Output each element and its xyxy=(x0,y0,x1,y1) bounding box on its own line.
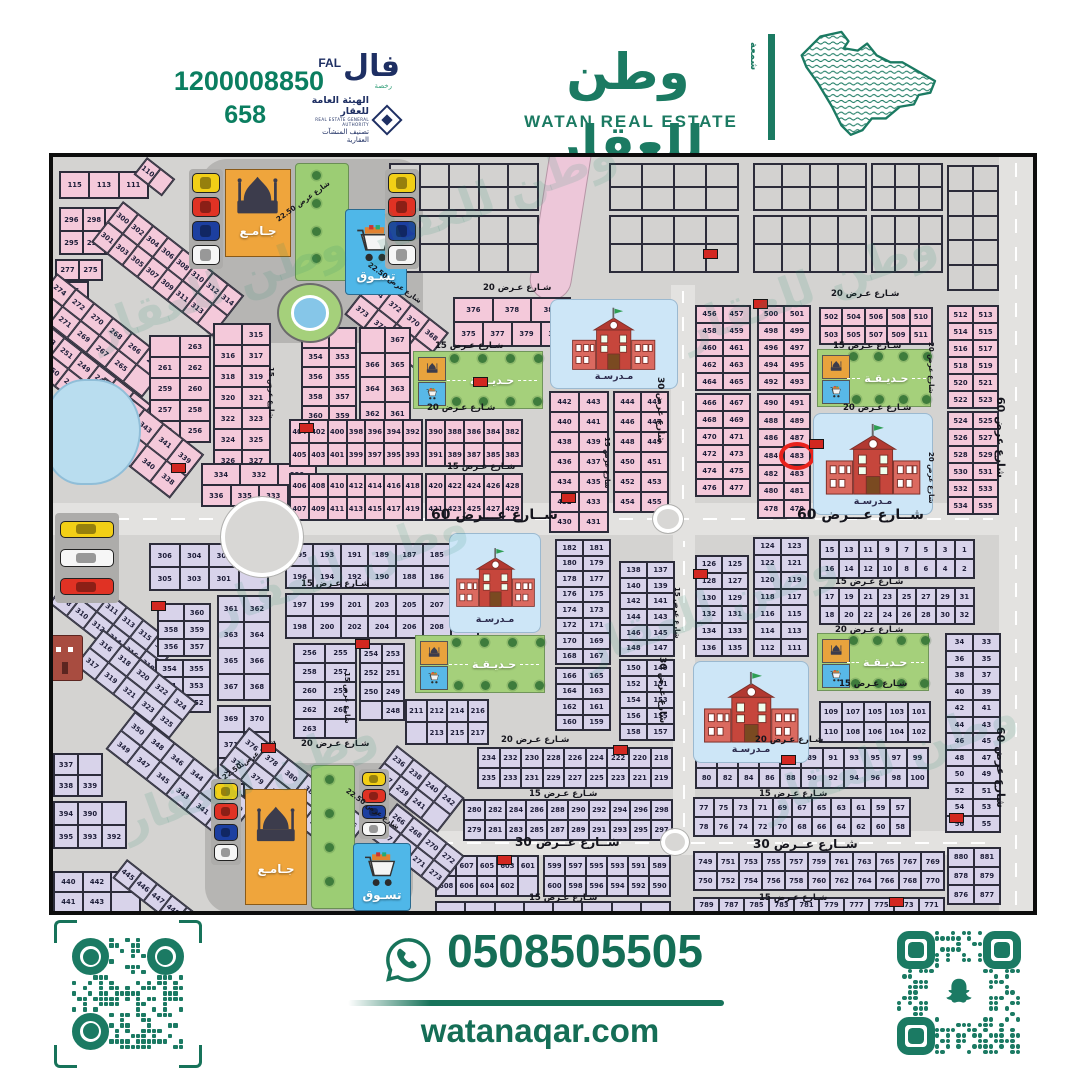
plot-row: 80828486889092949698100 xyxy=(696,768,928,788)
plot-unnumbered xyxy=(754,164,782,187)
tree-icon xyxy=(920,679,929,688)
plot-unnumbered xyxy=(973,191,998,216)
plot-122: 122 xyxy=(754,555,781,572)
plot-462: 462 xyxy=(696,356,723,373)
plot-row: 4847 xyxy=(946,750,1000,767)
plot-6: 6 xyxy=(916,559,935,578)
plot-unnumbered xyxy=(479,187,509,210)
qr-module xyxy=(924,969,928,973)
plot-486: 486 xyxy=(758,429,784,447)
plot-599: 599 xyxy=(544,856,565,876)
qr-module xyxy=(147,981,151,985)
plot-unnumbered xyxy=(948,265,973,290)
plot-499: 499 xyxy=(784,323,810,340)
qr-module xyxy=(163,981,167,985)
plot-395: 395 xyxy=(54,825,78,848)
street-label: شارع عرض 30 xyxy=(655,377,665,443)
plot-unnumbered xyxy=(420,216,450,244)
plot-355: 355 xyxy=(183,660,210,677)
qr-module xyxy=(924,1001,928,1005)
qr-module xyxy=(109,981,113,985)
qr-module xyxy=(972,1028,976,1032)
plot-193: 193 xyxy=(313,544,340,566)
plot-block-a24: 466467468469470471472473474475476477 xyxy=(695,393,751,497)
plot-row: 15131197531 xyxy=(820,540,974,559)
plot-789: 789 xyxy=(694,898,719,912)
plot-row: 534535 xyxy=(948,497,998,514)
plot-467: 467 xyxy=(723,394,750,411)
plot-876: 876 xyxy=(948,885,974,904)
plot-row: 142141 xyxy=(620,593,674,609)
plot-191: 191 xyxy=(341,544,368,566)
plot-2: 2 xyxy=(955,559,974,578)
qr-module xyxy=(1010,1050,1014,1054)
plot-771: 771 xyxy=(919,898,944,912)
plot-398: 398 xyxy=(347,420,366,443)
qr-module xyxy=(999,980,1003,984)
plot-483-highlighted: 483 xyxy=(784,447,810,465)
plot-37: 37 xyxy=(973,667,1000,684)
qr-module xyxy=(951,1028,955,1032)
plot-292: 292 xyxy=(589,800,610,820)
plot-368: 368 xyxy=(244,674,270,700)
plot-row: 390388386384382 xyxy=(426,420,522,443)
plot-unnumbered xyxy=(973,216,998,241)
plot-unnumbered xyxy=(642,216,674,244)
plot-365: 365 xyxy=(385,353,410,378)
street-label: شــارع عــرض 30 xyxy=(753,837,858,851)
plot-unnumbered xyxy=(508,216,538,244)
park-label: حـديـقـة xyxy=(472,658,516,671)
plot-397: 397 xyxy=(365,443,384,466)
plot-row: 138137 xyxy=(620,562,674,578)
plot-233: 233 xyxy=(500,768,522,788)
plot-14: 14 xyxy=(839,559,858,578)
plot-row xyxy=(754,164,866,187)
qr-module xyxy=(141,954,145,958)
qr-module xyxy=(1016,969,1020,973)
qr-module xyxy=(136,1013,140,1017)
plot-394: 394 xyxy=(54,802,78,825)
plot-row: 494495 xyxy=(758,356,810,373)
qr-module xyxy=(136,991,140,995)
plot-530: 530 xyxy=(948,463,973,480)
plot-152: 152 xyxy=(620,676,647,692)
qr-module xyxy=(120,1018,124,1022)
qr-module xyxy=(913,1006,917,1010)
plot-block-a21: 4424434404414384394364374344354324334304… xyxy=(549,391,609,533)
authority-diamond-icon xyxy=(374,107,400,133)
plot-row: 161412108642 xyxy=(820,559,974,578)
plot-188: 188 xyxy=(396,566,423,588)
qr-module xyxy=(152,1029,156,1033)
plot-80: 80 xyxy=(696,768,717,788)
plot-334: 334 xyxy=(202,464,240,485)
plot-row: 120119 xyxy=(754,572,808,589)
plot-row: 608606604602 xyxy=(436,876,538,896)
plot-103: 103 xyxy=(886,702,908,722)
qr-module xyxy=(109,1023,113,1027)
plot-526: 526 xyxy=(948,429,973,446)
plot-block-b19: 17192123252729311820222426283032 xyxy=(819,587,975,625)
footer-divider xyxy=(348,1000,724,1006)
plot-756: 756 xyxy=(762,871,785,890)
plot-469: 469 xyxy=(723,411,750,428)
qr-module xyxy=(989,1044,993,1048)
qr-module xyxy=(168,1034,172,1038)
qr-module xyxy=(924,985,928,989)
qr-module xyxy=(946,1028,950,1032)
plot-223: 223 xyxy=(607,768,629,788)
plot-143: 143 xyxy=(647,609,674,625)
plot-384: 384 xyxy=(484,420,503,443)
plot-443: 443 xyxy=(83,892,112,912)
plot-unnumbered xyxy=(919,187,942,210)
plot-93: 93 xyxy=(844,748,865,768)
school-icon: مـدرسـة xyxy=(813,413,933,515)
plot-row: 484483 xyxy=(758,447,810,465)
plot-unnumbered xyxy=(465,902,494,914)
plot-unnumbered xyxy=(754,187,782,210)
plot-508: 508 xyxy=(887,308,909,326)
plot-315: 315 xyxy=(242,324,270,345)
plot-row: 405403401399397395393 xyxy=(290,443,422,466)
plot-row: 4645 xyxy=(946,733,1000,750)
plot-393: 393 xyxy=(403,443,422,466)
qr-module xyxy=(125,1029,129,1033)
plot-row: 524525 xyxy=(948,412,998,429)
qr-module xyxy=(989,1023,993,1027)
qr-module xyxy=(163,975,167,979)
plot-260: 260 xyxy=(294,682,325,701)
qr-module xyxy=(994,1001,998,1005)
plot-154: 154 xyxy=(620,692,647,708)
plot-unnumbered xyxy=(754,244,782,272)
qr-module xyxy=(125,986,129,990)
plot-row: 488489 xyxy=(758,412,810,430)
plot-409: 409 xyxy=(309,497,328,520)
plot-58: 58 xyxy=(890,817,910,836)
plot-unnumbered xyxy=(436,902,465,914)
plot-unnumbered xyxy=(449,244,479,272)
plot-46: 46 xyxy=(946,733,973,750)
sign-marker xyxy=(703,249,718,259)
plot-row: 261262 xyxy=(150,357,210,378)
street-label: شــارع عـــرض 60 xyxy=(797,507,924,523)
fountain-roundabout xyxy=(277,283,343,343)
qr-module xyxy=(967,931,971,935)
parked-cars xyxy=(189,169,223,269)
plot-block-b13: 166165164163162161160159 xyxy=(555,667,611,731)
plot-row: 482483 xyxy=(758,465,810,483)
qr-module xyxy=(951,931,955,935)
street-label: شارع عرض 15 xyxy=(673,587,681,639)
qr-module xyxy=(956,1044,960,1048)
plot-row: 316317 xyxy=(214,345,270,366)
plot-row: 338339 xyxy=(54,775,102,796)
plot-row: 263 xyxy=(150,336,210,357)
qr-module xyxy=(999,1033,1003,1037)
plot-207: 207 xyxy=(423,594,450,616)
plot-row: 112111 xyxy=(754,639,808,656)
qr-module xyxy=(940,1039,944,1043)
plot-453: 453 xyxy=(641,472,668,492)
plot-117: 117 xyxy=(781,589,808,606)
authority-tagline: تصنيف المنشآت العقارية xyxy=(300,128,369,144)
qr-finder-dot xyxy=(994,942,1010,958)
qr-module xyxy=(163,1013,167,1017)
qr-module xyxy=(897,1006,901,1010)
sign-marker xyxy=(613,745,628,755)
plot-row: 440441 xyxy=(550,412,608,432)
plot-403: 403 xyxy=(309,443,328,466)
plot-unnumbered xyxy=(919,244,942,272)
plot-row: 599597595593591589 xyxy=(544,856,670,876)
qr-module xyxy=(972,1044,976,1048)
plot-306: 306 xyxy=(150,544,180,567)
park-area: حـديـقـة xyxy=(415,635,545,693)
plot-34: 34 xyxy=(946,634,973,651)
plot-39: 39 xyxy=(973,684,1000,701)
tree-icon xyxy=(533,397,542,406)
plot-row: 178177 xyxy=(556,571,610,587)
qr-module xyxy=(163,1039,167,1043)
street-label: شـارع عـرض 15 xyxy=(435,341,503,351)
plot-225: 225 xyxy=(586,768,608,788)
plot-row: 442443 xyxy=(550,392,608,412)
plot-493: 493 xyxy=(784,373,810,390)
plot-216: 216 xyxy=(468,700,489,722)
plot-881: 881 xyxy=(974,848,1000,867)
plot-20: 20 xyxy=(839,606,858,624)
qr-module xyxy=(935,1044,939,1048)
plot-row: 438439 xyxy=(550,432,608,452)
qr-module xyxy=(109,986,113,990)
green-strip xyxy=(295,163,349,281)
qr-module xyxy=(109,959,113,963)
plot-250: 250 xyxy=(360,682,382,701)
tree-icon xyxy=(312,199,321,208)
qr-module xyxy=(994,1050,998,1054)
plot-row: 395393392 xyxy=(54,825,126,848)
plot-757: 757 xyxy=(785,852,808,871)
plot-115: 115 xyxy=(60,172,89,198)
plot-88: 88 xyxy=(780,768,801,788)
qr-module xyxy=(919,1001,923,1005)
plot-unnumbered xyxy=(610,244,642,272)
plot-135: 135 xyxy=(722,639,748,656)
qr-module xyxy=(946,1044,950,1048)
qr-module xyxy=(935,1033,939,1037)
qr-module xyxy=(93,997,97,1001)
qr-module xyxy=(924,980,928,984)
qr-module xyxy=(173,986,177,990)
plot-296: 296 xyxy=(60,208,83,231)
plot-66: 66 xyxy=(812,817,832,836)
qr-module xyxy=(913,996,917,1000)
plot-block-b12: 1821811801791781771761751741731721711701… xyxy=(555,539,611,665)
plot-136: 136 xyxy=(696,639,722,656)
qr-module xyxy=(897,1001,901,1005)
plot-unnumbered xyxy=(610,164,642,187)
plot-160: 160 xyxy=(556,715,583,731)
qr-module xyxy=(104,991,108,995)
qr-module xyxy=(913,985,917,989)
qr-module xyxy=(115,1029,119,1033)
qr-module xyxy=(989,985,993,989)
qr-module xyxy=(163,997,167,1001)
plot-364: 364 xyxy=(360,377,385,402)
plot-463: 463 xyxy=(723,356,750,373)
car-icon xyxy=(60,521,114,538)
mini-mosque-icon xyxy=(418,357,446,381)
plot-217: 217 xyxy=(468,722,489,744)
plot-30: 30 xyxy=(936,606,955,624)
sign-marker xyxy=(261,743,276,753)
plot-row: 3837 xyxy=(946,667,1000,684)
qr-module xyxy=(173,991,177,995)
plot-row: 492493 xyxy=(758,373,810,390)
plot-255: 255 xyxy=(325,644,356,663)
plot-356: 356 xyxy=(158,639,184,656)
plot-unnumbered xyxy=(919,216,942,244)
plot-392: 392 xyxy=(102,825,126,848)
qr-module xyxy=(1010,1033,1014,1037)
plot-518: 518 xyxy=(948,357,973,374)
street-label: شــارع عــرض 30 xyxy=(515,835,620,849)
plot-181: 181 xyxy=(583,540,610,556)
qr-module xyxy=(141,1039,145,1043)
plot-row: 257258 xyxy=(150,400,210,421)
plot-104: 104 xyxy=(886,722,908,742)
qr-module xyxy=(120,949,124,953)
plot-137: 137 xyxy=(647,562,674,578)
qr-module xyxy=(99,1002,103,1006)
plot-522: 522 xyxy=(948,391,973,408)
plot-520: 520 xyxy=(948,374,973,391)
qr-module xyxy=(989,1001,993,1005)
plot-row: 176175 xyxy=(556,587,610,603)
plot-337: 337 xyxy=(54,754,78,775)
mini-cart-icon xyxy=(822,380,850,404)
qr-module xyxy=(136,949,140,953)
street-label: شـارع عـرض 15 xyxy=(759,789,827,799)
qr-module xyxy=(972,1033,976,1037)
plot-row: 522523 xyxy=(948,391,998,408)
qr-module xyxy=(989,996,993,1000)
plot-113: 113 xyxy=(89,172,118,198)
plot-363: 363 xyxy=(385,377,410,402)
qr-module xyxy=(179,986,183,990)
plot-unnumbered xyxy=(973,240,998,265)
plot-483: 483 xyxy=(784,465,810,483)
brand-divider-bar xyxy=(768,34,775,140)
plot-row: 466467 xyxy=(696,394,750,411)
plot-204: 204 xyxy=(368,616,395,638)
plot-row: 211212214216 xyxy=(406,700,488,722)
plot-unnumbered xyxy=(674,216,706,244)
plot-row: 441443 xyxy=(54,892,140,912)
plot-row xyxy=(948,240,998,265)
plot-65: 65 xyxy=(812,798,832,817)
plot-101: 101 xyxy=(908,702,930,722)
plot-260: 260 xyxy=(180,378,210,399)
plot-row: 1719212325272931 xyxy=(820,588,974,606)
plot-32: 32 xyxy=(955,606,974,624)
plot-row xyxy=(948,216,998,241)
plot-366: 366 xyxy=(360,353,385,378)
plot-189: 189 xyxy=(368,544,395,566)
plot-44: 44 xyxy=(946,717,973,734)
plot-unnumbered xyxy=(150,336,180,357)
street-label: شارع عرض 15 xyxy=(267,367,275,419)
plot-row: 5251 xyxy=(946,783,1000,800)
plot-787: 787 xyxy=(719,898,744,912)
parked-cars xyxy=(385,169,419,269)
plot-62: 62 xyxy=(851,817,871,836)
plot-605: 605 xyxy=(477,856,497,876)
plot-4: 4 xyxy=(936,559,955,578)
qr-module xyxy=(983,1023,987,1027)
plot-201: 201 xyxy=(341,594,368,616)
plot-524: 524 xyxy=(948,412,973,429)
qr-module xyxy=(115,1002,119,1006)
qr-module xyxy=(125,997,129,1001)
qr-module xyxy=(908,996,912,1000)
plot-451: 451 xyxy=(641,452,668,472)
car-icon xyxy=(192,173,220,192)
plot-row xyxy=(610,164,738,187)
plot-unnumbered xyxy=(612,902,641,914)
qr-module xyxy=(120,1045,124,1049)
plot-row: 1820222426283032 xyxy=(820,606,974,624)
plot-block-b18: 15131197531161412108642 xyxy=(819,539,975,579)
plot-763: 763 xyxy=(853,852,876,871)
plot-22: 22 xyxy=(859,606,878,624)
plot-213: 213 xyxy=(427,722,448,744)
plot-86: 86 xyxy=(759,768,780,788)
plot-477: 477 xyxy=(723,479,750,496)
plot-418: 418 xyxy=(403,474,422,497)
tree-icon xyxy=(849,636,858,645)
plot-unnumbered xyxy=(838,187,866,210)
qr-module xyxy=(935,963,939,967)
plot-row: 878879 xyxy=(948,867,1000,886)
qr-module xyxy=(179,975,183,979)
plot-block-b11: 211212214216213215217 xyxy=(405,699,489,745)
street-label: شـارع عـرض 20 xyxy=(835,625,903,635)
qr-module xyxy=(157,975,161,979)
plot-row: 452453 xyxy=(614,472,668,492)
plot-220: 220 xyxy=(629,748,651,768)
qr-module xyxy=(935,1017,939,1021)
plot-row: 110108106104102 xyxy=(820,722,930,742)
qr-module xyxy=(989,969,993,973)
qr-module xyxy=(173,1023,177,1027)
plot-block-b14: 138137140139142141144143146145148147 xyxy=(619,561,675,657)
plot-186: 186 xyxy=(423,566,450,588)
school-label: مـدرسـة xyxy=(595,371,633,382)
qr-module xyxy=(157,1013,161,1017)
plot-block-a26: 4904914884894864874844834824834804814784… xyxy=(757,393,811,519)
plot-468: 468 xyxy=(696,411,723,428)
plot-378: 378 xyxy=(493,298,532,322)
plot-496: 496 xyxy=(758,340,784,357)
plot-row: 480481 xyxy=(758,483,810,501)
plot-256: 256 xyxy=(294,644,325,663)
plot-355: 355 xyxy=(329,367,356,387)
mosque-label: جـامـع xyxy=(240,224,277,238)
